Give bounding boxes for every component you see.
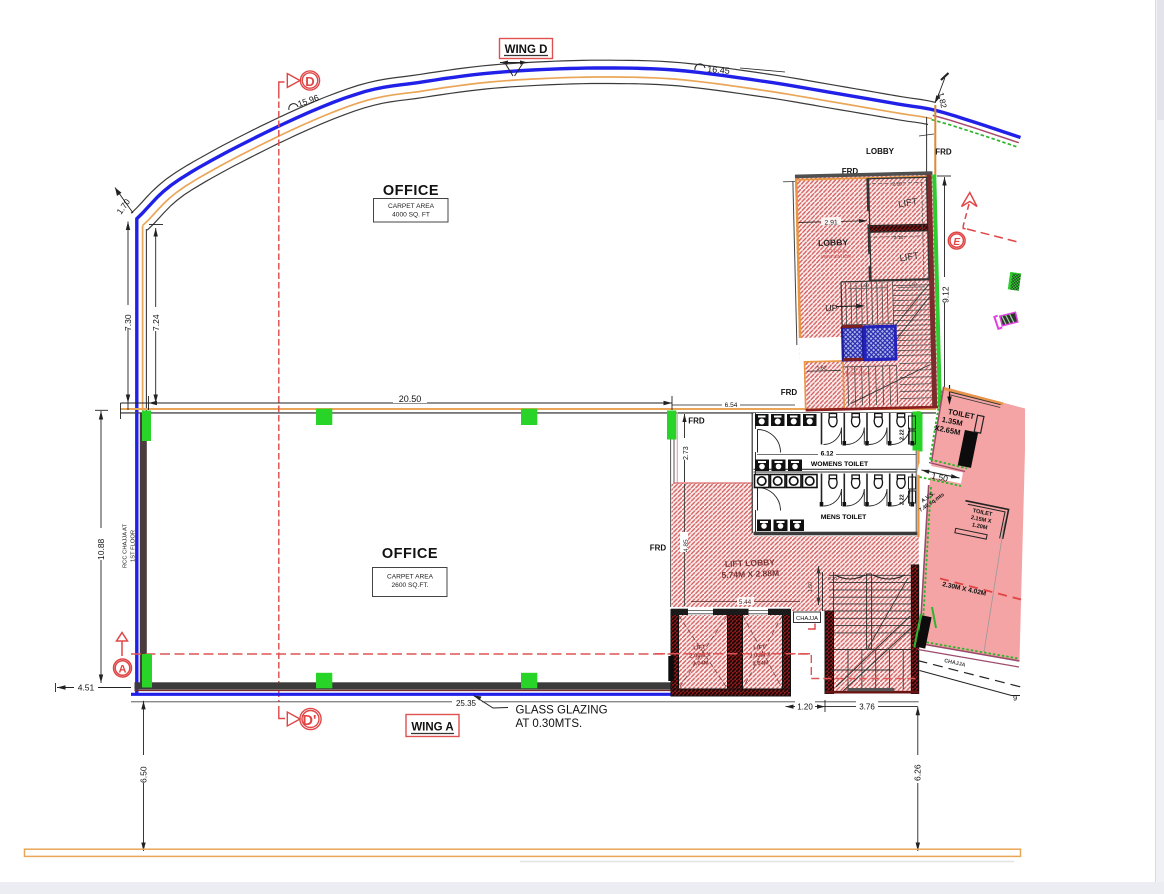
- svg-text:D': D': [303, 713, 317, 729]
- svg-text:0.30: 0.30: [828, 576, 837, 581]
- svg-text:A.V.S.: A.V.S.: [851, 365, 863, 370]
- svg-text:7.24: 7.24: [151, 314, 161, 331]
- svg-text:GLASS GLAZING: GLASS GLAZING: [516, 705, 608, 717]
- svg-text:LIFT: LIFT: [693, 645, 706, 652]
- svg-text:2.91: 2.91: [824, 219, 838, 226]
- svg-text:WOMENS TOILET: WOMENS TOILET: [811, 461, 869, 468]
- svg-text:2600 SQ.FT.: 2600 SQ.FT.: [391, 582, 428, 589]
- svg-text:9.12: 9.12: [941, 286, 951, 303]
- svg-text:4.51: 4.51: [78, 683, 95, 693]
- svg-text:MENS TOILET: MENS TOILET: [821, 514, 867, 521]
- svg-text:VENTILATION: VENTILATION: [843, 371, 871, 377]
- svg-text:7.30: 7.30: [123, 314, 133, 331]
- svg-text:FRD: FRD: [781, 388, 798, 397]
- svg-text:A: A: [119, 664, 127, 676]
- svg-text:1.50: 1.50: [860, 283, 869, 288]
- svg-text:CHAJJA: CHAJJA: [796, 616, 818, 622]
- svg-text:1.20: 1.20: [797, 703, 813, 712]
- svg-text:1.50: 1.50: [908, 282, 917, 287]
- svg-text:6.12: 6.12: [821, 451, 834, 458]
- svg-text:2.73: 2.73: [683, 446, 690, 460]
- svg-text:WING D: WING D: [505, 44, 548, 56]
- svg-text:OFFICE: OFFICE: [382, 546, 438, 562]
- svg-text:AT 0.30MTS.: AT 0.30MTS.: [516, 718, 583, 730]
- svg-text:16.45: 16.45: [707, 64, 730, 76]
- svg-text:UP: UP: [825, 303, 838, 313]
- svg-text:D: D: [305, 74, 314, 89]
- svg-text:CARPET AREA: CARPET AREA: [387, 574, 434, 581]
- svg-text:2.10: 2.10: [892, 181, 902, 187]
- svg-text:5.74M X 2.88M: 5.74M X 2.88M: [721, 568, 779, 580]
- svg-text:3.76: 3.76: [859, 703, 875, 712]
- svg-text:25.35: 25.35: [456, 699, 477, 708]
- svg-text:3.04M: 3.04M: [692, 660, 709, 667]
- svg-text:6.50: 6.50: [139, 766, 149, 783]
- svg-text:5.44: 5.44: [739, 599, 752, 606]
- svg-text:RCC CHAJJA AT: RCC CHAJJA AT: [123, 524, 129, 568]
- svg-text:1.62: 1.62: [817, 365, 827, 371]
- svg-text:LOBBY: LOBBY: [866, 147, 895, 156]
- svg-text:20.50: 20.50: [399, 394, 422, 404]
- svg-text:FRD: FRD: [935, 148, 952, 157]
- svg-text:6.54: 6.54: [725, 402, 738, 409]
- svg-text:3.04M: 3.04M: [752, 660, 769, 667]
- svg-text:1ST FLOOR: 1ST FLOOR: [131, 530, 137, 562]
- svg-text:1.50: 1.50: [808, 582, 814, 592]
- svg-text:6.26: 6.26: [913, 764, 923, 781]
- svg-text:E: E: [953, 237, 960, 248]
- svg-text:OFFICE: OFFICE: [383, 183, 439, 199]
- svg-text:10.88: 10.88: [96, 538, 106, 560]
- svg-text:4000 SQ. FT: 4000 SQ. FT: [392, 212, 430, 219]
- svg-text:LOBBY: LOBBY: [818, 237, 849, 248]
- svg-text:9: 9: [1013, 694, 1017, 703]
- svg-text:FRD: FRD: [688, 417, 705, 426]
- svg-text:WING A: WING A: [411, 722, 453, 734]
- svg-text:VENTILATION: VENTILATION: [821, 254, 851, 260]
- svg-text:2.10: 2.10: [894, 235, 904, 241]
- svg-text:LIFT: LIFT: [753, 645, 766, 652]
- svg-text:CARPET AREA: CARPET AREA: [388, 203, 435, 210]
- svg-text:LIFT LOBBY: LIFT LOBBY: [725, 557, 776, 569]
- svg-text:4.85: 4.85: [683, 539, 690, 552]
- svg-text:FRD: FRD: [650, 544, 667, 553]
- svg-text:2.22: 2.22: [900, 429, 906, 440]
